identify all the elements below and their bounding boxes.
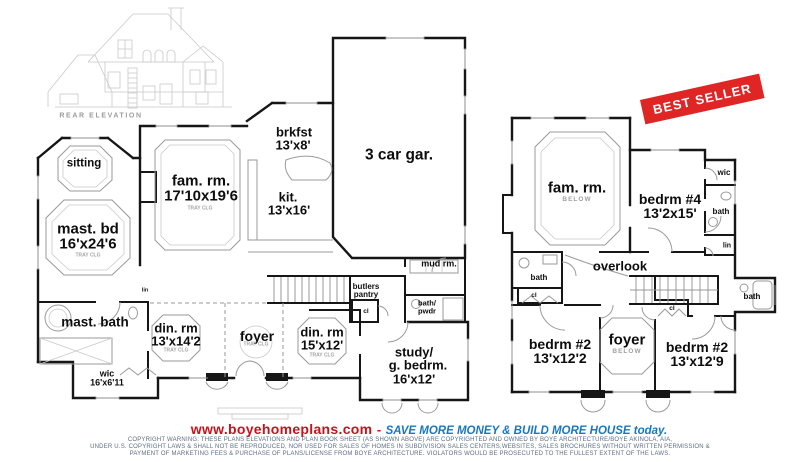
room-label-bedroom-4: bedrm #4 [639, 192, 701, 206]
floorplan-linework [0, 0, 800, 462]
room-label-butlers-2: pantry [354, 291, 378, 299]
room-label-study-2: g. bedrm. [389, 359, 448, 372]
room-label-master-bed: mast. bd [57, 222, 119, 237]
room-label-bath-left: bath [531, 274, 548, 282]
room-label-master-bath: mast. bath [61, 315, 129, 329]
below-note: BELOW [612, 349, 641, 356]
closet-label-left: cl [531, 293, 536, 300]
room-label-bath-right: bath [744, 293, 761, 301]
rear-elevation-drawing [48, 8, 232, 108]
room-dim-dining-1: 13'x14'2 [151, 335, 201, 348]
room-label-family-room: fam. rm. [172, 174, 230, 189]
room-dim-bedroom-2-right: 13'x12'9 [670, 354, 723, 368]
footer-tagline: SAVE MORE MONEY & BUILD MORE HOUSE today… [386, 425, 668, 437]
copyright-line-2: UNDER U.S. COPYRIGHT LAWS & SHALL NOT BE… [0, 444, 800, 451]
tray-clg-note: TRAY CLG [243, 343, 268, 348]
room-dim-kitchen: 13'x16' [268, 204, 310, 217]
room-label-bath-pwdr-2: pwdr [418, 307, 436, 315]
tray-clg-note: TRAY CLG [309, 354, 334, 359]
copyright-line-3: PAYMENT OF MARKETING FEES & PURCHASE OF … [0, 451, 800, 458]
tray-clg-note: TRAY CLG [75, 254, 100, 259]
room-label-bedroom-2-left: bedrm #2 [529, 337, 591, 351]
overlook-label: overlook [593, 260, 647, 273]
room-label-bedroom-2-right: bedrm #2 [666, 340, 728, 354]
closet-label-right: cl [669, 306, 674, 313]
room-dim-master-bed: 16'x24'6 [59, 237, 116, 252]
room-label-family-room-below: fam. rm. [548, 181, 606, 196]
website-url: www.boyehomeplans.com [191, 421, 373, 437]
room-label-bath-col: bath [713, 208, 730, 216]
linen-label-2: lin [723, 243, 731, 250]
room-label-garage: 3 car gar. [365, 147, 433, 163]
closet-label: cl [363, 309, 368, 316]
room-dim-dining-2: 15'x12' [301, 339, 343, 352]
room-label-wic-2: wic [718, 169, 731, 177]
plan-sheet: sitting mast. bd 16'x24'6 TRAY CLG fam. … [0, 0, 800, 462]
room-label-foyer-below: foyer [609, 333, 646, 348]
room-label-sitting: sitting [67, 158, 102, 170]
tray-clg-note: TRAY CLG [187, 207, 212, 212]
room-dim-wic-1: 16'x6'11 [90, 379, 124, 388]
rear-elevation-caption: REAR ELEVATION [59, 113, 142, 120]
room-dim-breakfast: 13'x8' [275, 139, 310, 152]
room-label-mud-room: mud rm. [421, 260, 457, 269]
room-dim-bedroom-2-left: 13'x12'2 [533, 351, 586, 365]
room-dim-family-room: 17'10x19'6 [164, 189, 238, 204]
copyright-block: COPYRIGHT WARNING: THESE PLANS ELEVATION… [0, 437, 800, 459]
copyright-line-1: COPYRIGHT WARNING: THESE PLANS ELEVATION… [0, 437, 800, 444]
below-note: BELOW [562, 197, 591, 204]
room-dim-bedroom-4: 13'2x15' [643, 206, 696, 220]
room-dim-study: 16'x12' [393, 373, 435, 386]
footer-dash: - [377, 422, 381, 437]
tray-clg-note: TRAY CLG [163, 349, 188, 354]
linen-label: lin [142, 288, 148, 294]
